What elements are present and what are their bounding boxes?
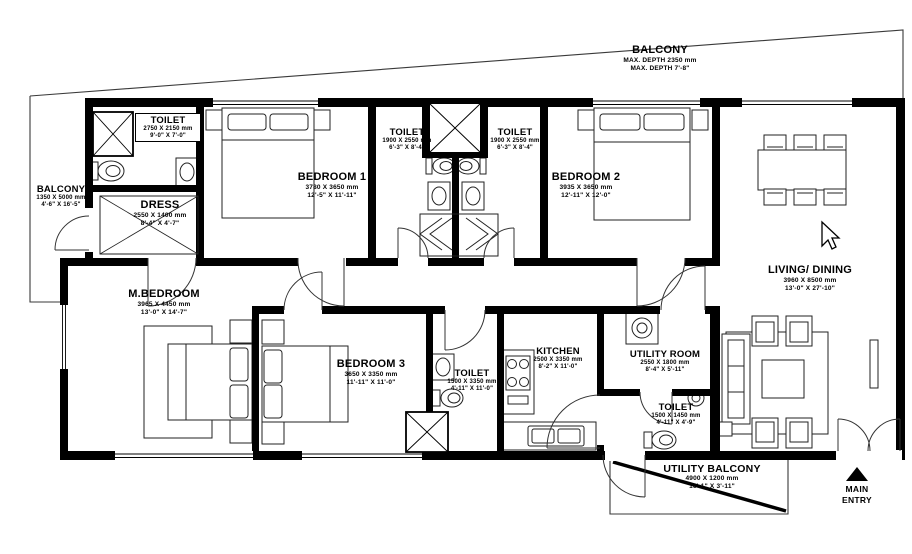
room-label-toilet-utility: TOILET 1500 X 1450 mm 4'-11" X 4'-9" [644,402,708,427]
floorplan-page: BALCONY MAX. DEPTH 2350 mm MAX. DEPTH 7'… [0,0,912,554]
dining-table [758,135,846,205]
room-label-toilet-mid-right: TOILET 1900 X 2550 mm 6'-3" X 8'-4" [486,127,544,152]
room-label-utility-balcony: UTILITY BALCONY 4900 X 1200 mm 16'-1" X … [647,463,777,491]
room-label-toilet-bedroom3: TOILET 1500 X 3350 mm 4'-11" X 11'-0" [442,368,502,393]
shaft-box [429,103,481,153]
room-label-bedroom-1: BEDROOM 1 3780 X 3650 mm 12'-5" X 11'-11… [276,171,388,199]
sofa-set [718,316,878,448]
main-entry-arrow-icon [846,467,868,481]
room-label-balcony-left: BALCONY 1350 X 5000 mm 4'-6" X 16'-5" [28,184,94,209]
shower-top-left [93,112,133,156]
master-bedroom-bed [144,320,252,443]
toilet-top-left-fixtures [90,158,198,186]
room-label-balcony-top: BALCONY MAX. DEPTH 2350 mm MAX. DEPTH 7'… [600,44,720,72]
room-label-kitchen: KITCHEN 2500 X 3350 mm 8'-2" X 11'-0" [508,346,608,371]
room-label-bedroom-3: BEDROOM 3 3650 X 3350 mm 11'-11" X 11'-0… [315,358,427,386]
main-entry-label: MAIN ENTRY [836,484,878,505]
room-label-toilet-mid-left: TOILET 1900 X 2550 mm 6'-3" X 8'-4" [378,127,436,152]
room-label-utility-room: UTILITY ROOM 2550 X 1800 mm 8'-4" X 5'-1… [614,349,716,374]
room-label-dress: DRESS 2550 X 1400 mm 8'-4" X 4'-7" [114,199,206,227]
room-label-bedroom-2: BEDROOM 2 3935 X 3650 mm 12'-11" X 12'-0… [530,171,642,199]
cursor-icon [822,222,839,249]
washing-machine [626,312,658,344]
bedroom1-bed [206,108,330,218]
shower-bedroom3-toilet [406,412,448,452]
room-label-toilet-top-left: TOILET 2750 X 2150 mm 9'-0" X 7'-0" [135,113,201,142]
room-label-living-dining: LIVING/ DINING 3960 X 8500 mm 13'-0" X 2… [748,264,872,292]
bedroom2-bed [578,108,708,220]
room-label-m-bedroom: M.BEDROOM 3965 X 4450 mm 13'-0" X 14'-7" [106,288,222,316]
